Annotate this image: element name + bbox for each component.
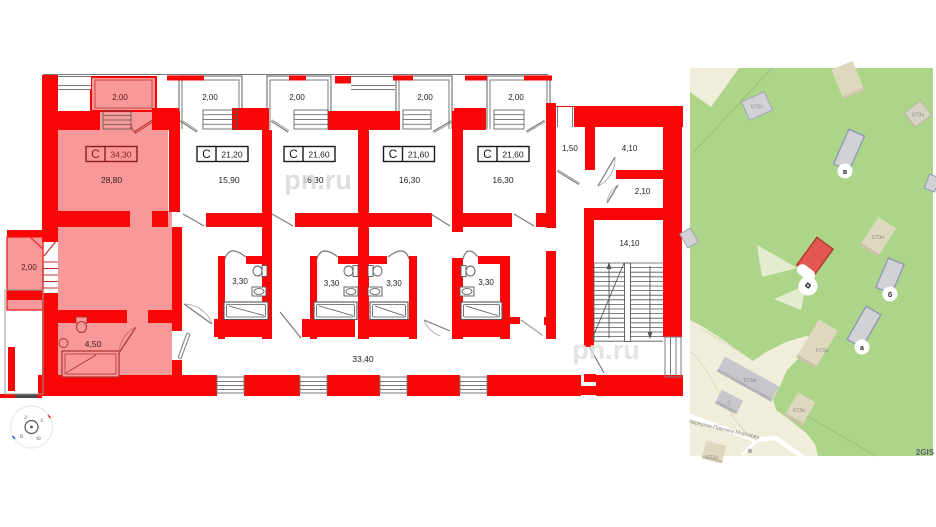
svg-text:3,30: 3,30 — [478, 278, 494, 287]
svg-text:б: б — [888, 291, 893, 299]
svg-text:28,80: 28,80 — [101, 175, 123, 185]
svg-text:2GIS: 2GIS — [916, 448, 935, 457]
svg-text:C: C — [389, 147, 398, 161]
svg-text:2,00: 2,00 — [508, 93, 524, 102]
svg-text:16,30: 16,30 — [399, 175, 421, 185]
svg-text:4,50: 4,50 — [85, 339, 102, 349]
svg-text:21,60: 21,60 — [502, 150, 524, 160]
svg-text:2,00: 2,00 — [112, 93, 128, 102]
svg-text:673п: 673п — [751, 105, 763, 111]
svg-text:3,30: 3,30 — [386, 279, 402, 288]
svg-text:3,30: 3,30 — [324, 279, 340, 288]
svg-text:673е: 673е — [793, 408, 805, 414]
svg-text:C: C — [202, 147, 211, 161]
svg-text:C: C — [483, 147, 492, 161]
svg-text:673д: 673д — [816, 348, 829, 354]
svg-text:673н: 673н — [872, 235, 884, 241]
svg-text:2,00: 2,00 — [289, 93, 305, 102]
svg-text:2,00: 2,00 — [21, 263, 37, 272]
svg-text:ю: ю — [36, 436, 41, 442]
svg-text:з: з — [24, 415, 27, 421]
svg-text:с: с — [41, 418, 44, 424]
svg-text:pn.ru: pn.ru — [572, 335, 640, 365]
svg-text:1,50: 1,50 — [562, 144, 578, 153]
svg-text:21,20: 21,20 — [221, 150, 243, 160]
svg-text:673э: 673э — [706, 455, 718, 461]
svg-text:pn.ru: pn.ru — [284, 165, 352, 195]
svg-text:в: в — [20, 434, 23, 440]
svg-text:2,00: 2,00 — [202, 93, 218, 102]
svg-text:2,10: 2,10 — [635, 187, 651, 196]
svg-text:1: 1 — [727, 401, 730, 407]
svg-text:673з: 673з — [912, 113, 924, 119]
svg-text:15,90: 15,90 — [218, 175, 240, 185]
svg-text:4,10: 4,10 — [622, 144, 638, 153]
svg-text:33,40: 33,40 — [352, 354, 374, 364]
svg-text:34,30: 34,30 — [110, 150, 132, 160]
svg-text:673ж: 673ж — [744, 378, 757, 384]
svg-text:2,00: 2,00 — [417, 93, 433, 102]
svg-text:3,30: 3,30 — [232, 277, 248, 286]
svg-text:а: а — [860, 345, 864, 352]
svg-text:21,60: 21,60 — [308, 150, 330, 160]
svg-text:21,60: 21,60 — [408, 150, 430, 160]
svg-text:16,30: 16,30 — [492, 175, 514, 185]
svg-text:в: в — [843, 169, 848, 176]
svg-text:C: C — [91, 147, 100, 161]
svg-text:14,10: 14,10 — [619, 239, 640, 248]
svg-text:C: C — [289, 147, 298, 161]
